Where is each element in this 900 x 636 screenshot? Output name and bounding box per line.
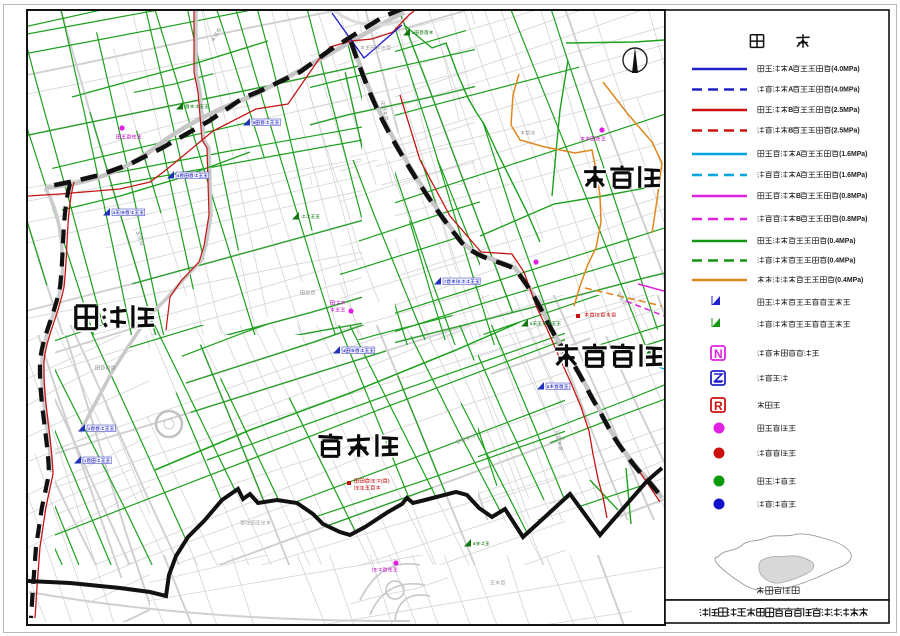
svg-text:(0.4MPa): (0.4MPa): [835, 277, 863, 284]
svg-text:(1.6MPa): (1.6MPa): [839, 172, 867, 179]
svg-text:(2.5MPa): (2.5MPa): [831, 128, 859, 135]
svg-text:B: B: [796, 216, 801, 223]
svg-text:R: R: [714, 399, 723, 413]
svg-text:(4.0MPa): (4.0MPa): [831, 87, 859, 94]
svg-text:(2.5MPa): (2.5MPa): [831, 107, 859, 114]
svg-text:(4.0MPa): (4.0MPa): [831, 66, 859, 73]
svg-text:B: B: [796, 193, 801, 200]
svg-text:A: A: [788, 66, 793, 73]
svg-text:N: N: [714, 347, 723, 361]
svg-text:(0.4MPa): (0.4MPa): [827, 258, 855, 265]
svg-text:(0.8MPa): (0.8MPa): [839, 216, 867, 223]
svg-text:A: A: [788, 87, 793, 94]
svg-text:B: B: [788, 107, 793, 114]
svg-text:(0.8MPa): (0.8MPa): [839, 193, 867, 200]
svg-text:(1.6MPa): (1.6MPa): [839, 151, 867, 158]
svg-text:B: B: [788, 128, 793, 135]
svg-text:(0.4MPa): (0.4MPa): [827, 238, 855, 245]
svg-text:A: A: [796, 151, 801, 158]
svg-text:A: A: [796, 172, 801, 179]
